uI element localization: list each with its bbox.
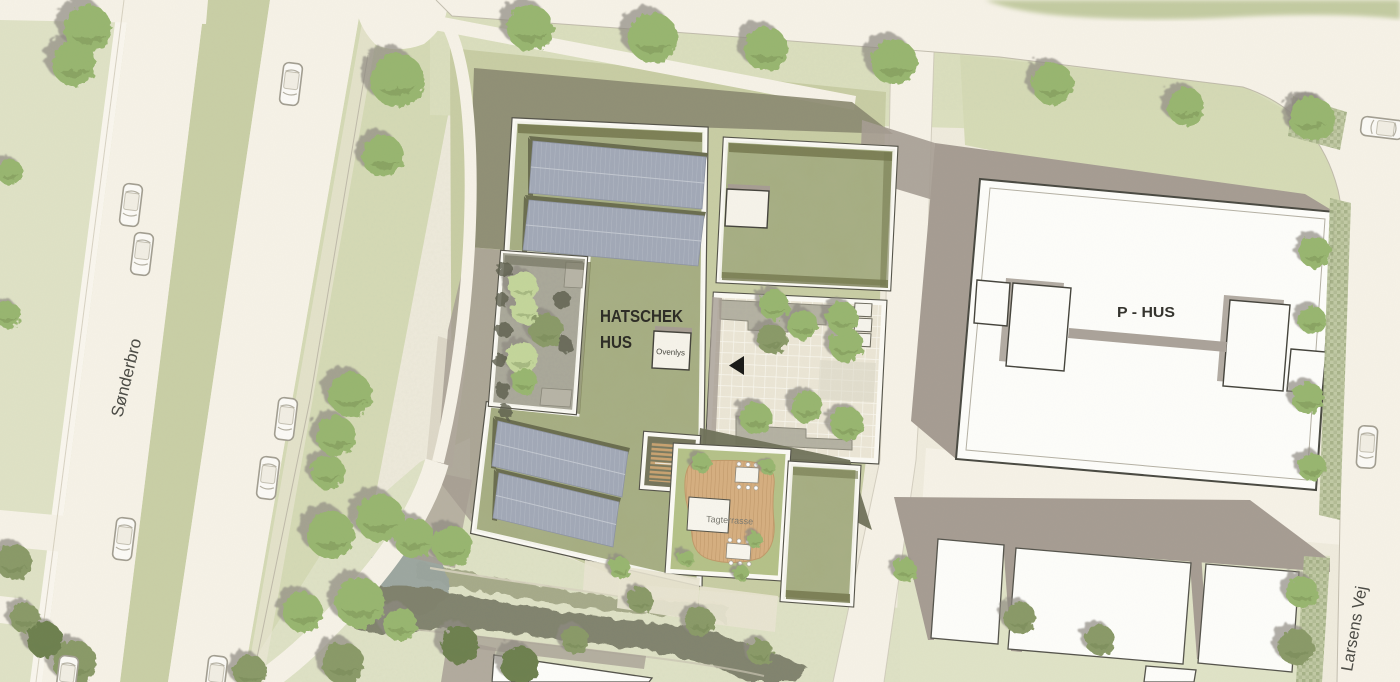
svg-text:HATSCHEK: HATSCHEK [600, 306, 683, 326]
svg-text:Ovenlys: Ovenlys [656, 347, 685, 358]
svg-text:HUS: HUS [600, 332, 632, 352]
svg-text:P - HUS: P - HUS [1117, 304, 1175, 321]
